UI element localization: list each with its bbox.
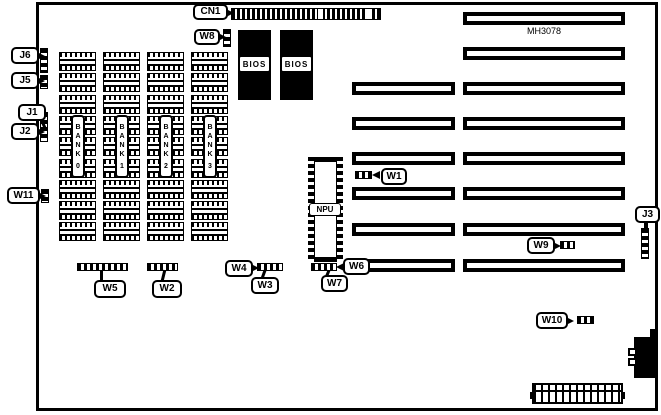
memory-chip [191,222,228,241]
cn1-connector-gap [365,9,370,19]
j3-header-pins [641,228,649,259]
memory-chip [147,222,184,241]
isa-slot-5-main [463,152,625,165]
isa-slot-7-extension [352,223,455,236]
w10-jumper-pins [577,316,594,324]
callout-j2: J2 [11,123,39,140]
memory-chip [147,201,184,220]
bios-chip-2: BIOS [280,30,313,100]
callout-j6: J6 [11,47,39,64]
bios-chip-2-label: BIOS [281,56,312,72]
memory-chip [59,222,96,241]
callout-w1-pointer-icon [372,171,380,179]
isa-slot-1-main [463,12,625,25]
memory-chip [59,95,96,114]
memory-chip [147,73,184,92]
motherboard-diagram: MH3078 CN1 W8 BIOS BIOS J6 J5 J1 J2 W11 … [0,0,661,415]
memory-chip [59,52,96,71]
w4-jumper-pins [257,263,283,271]
callout-w3: W3 [251,277,279,294]
memory-chip [191,73,228,92]
npu-label: NPU [309,203,341,216]
bios-chip-1-label: BIOS [239,56,270,72]
callout-w2: W2 [152,280,182,298]
cn1-pin-connector [231,8,381,20]
memory-chip [59,180,96,199]
isa-slot-5-extension [352,152,455,165]
memory-chip [191,201,228,220]
callout-w10: W10 [536,312,568,329]
npu-socket: NPU [308,157,343,262]
isa-slot-8-main [463,259,625,272]
callout-j1: J1 [18,104,46,121]
keyboard-connector-notch [628,358,637,366]
bank-label-0: BANK0 [71,115,85,178]
bank-label-3: BANK3 [203,115,217,178]
memory-chip [103,52,140,71]
isa-slot-3-main [463,82,625,95]
cn1-connector-gap [318,9,323,19]
isa-slot-4-main [463,117,625,130]
isa-slot-2-main [463,47,625,60]
callout-w1: W1 [381,168,407,185]
bios-chip-1: BIOS [238,30,271,100]
callout-w11: W11 [7,187,40,204]
memory-chip [147,180,184,199]
callout-j5: J5 [11,72,39,89]
memory-chip [147,52,184,71]
keyboard-connector-step [650,329,658,338]
callout-j3: J3 [635,206,660,223]
callout-cn1: CN1 [193,4,228,20]
callout-w5: W5 [94,280,126,298]
memory-chip [59,201,96,220]
memory-chip [59,73,96,92]
memory-chip [103,201,140,220]
w1-jumper-pins [355,171,372,179]
memory-chip [191,52,228,71]
keyboard-connector-notch [628,348,637,356]
bank-label-1: BANK1 [115,115,129,178]
memory-chip [191,180,228,199]
memory-chip [103,95,140,114]
memory-chip [147,95,184,114]
callout-w9: W9 [527,237,555,254]
memory-chip [103,180,140,199]
callout-w6: W6 [343,258,370,275]
board-part-number: MH3078 [514,26,574,36]
npu-socket-window [315,214,336,257]
memory-chip [103,73,140,92]
npu-socket-window [315,162,336,205]
memory-chip [103,222,140,241]
keyboard-connector [634,337,658,378]
isa-slot-6-extension [352,187,455,200]
isa-slot-7-main [463,223,625,236]
callout-w7: W7 [321,275,348,292]
isa-slot-4-extension [352,117,455,130]
isa-slot-3-extension [352,82,455,95]
bank-label-2: BANK2 [159,115,173,178]
memory-chip [191,95,228,114]
w6-w7-jumper-pins [311,263,337,271]
power-connector [532,383,623,404]
callout-w4: W4 [225,260,253,277]
callout-w8: W8 [194,29,220,45]
isa-slot-6-main [463,187,625,200]
w9-jumper-pins [560,241,575,249]
